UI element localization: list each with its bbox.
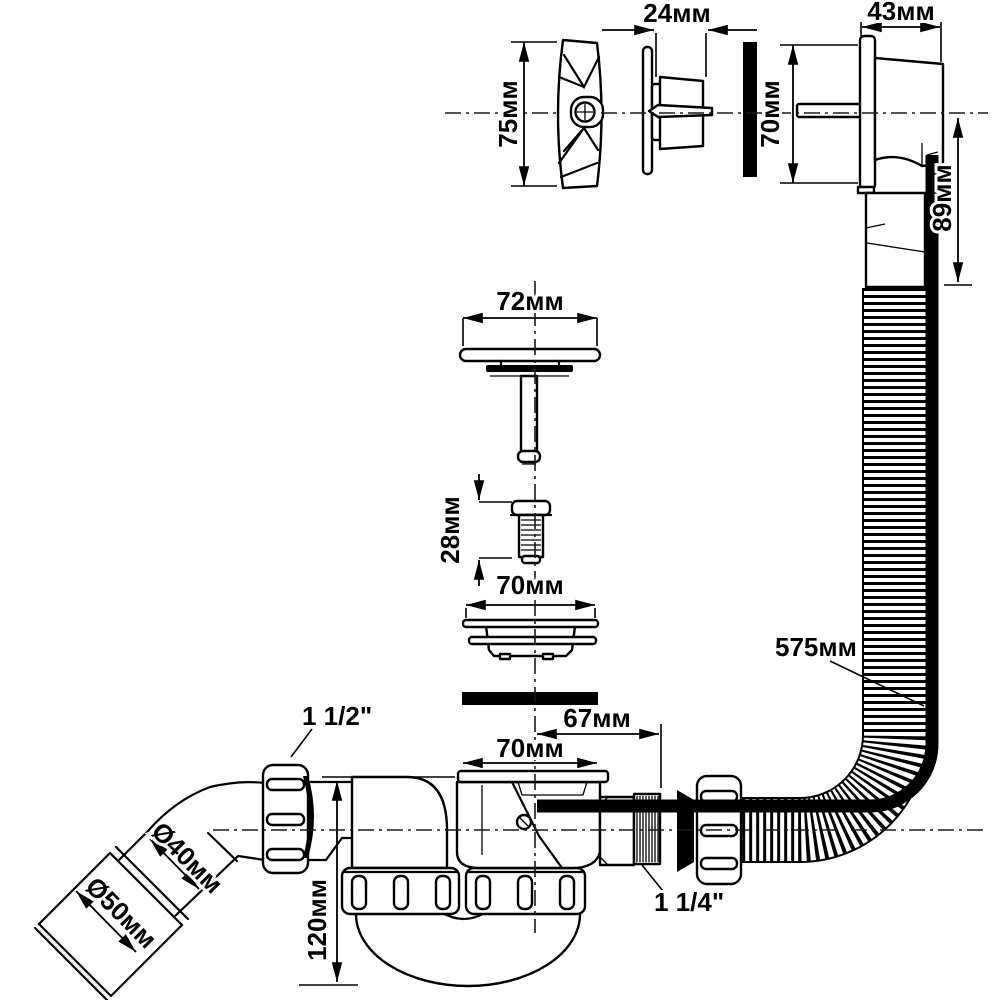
drain-strainer xyxy=(463,620,598,659)
dim-label-70mm-body: 70мм xyxy=(496,733,563,763)
diagram-canvas: 75мм 24мм 43мм 70мм 89мм 72мм 28мм 70мм … xyxy=(0,0,1000,1000)
dim-label-28mm: 28мм xyxy=(435,496,465,563)
dim-label-24mm: 24мм xyxy=(643,0,710,28)
technical-drawing-page: 75мм 24мм 43мм 70мм 89мм 72мм 28мм 70мм … xyxy=(0,0,1000,1000)
overflow-body-side-view xyxy=(797,36,943,287)
dim-label-70mm-overflow: 70мм xyxy=(755,80,785,147)
overflow-outlet-tube xyxy=(866,193,925,287)
dim-label-575mm: 575мм xyxy=(775,632,857,662)
pull-rod-tip xyxy=(649,105,712,117)
overflow-pull-rod xyxy=(797,104,861,117)
trap-inlet-elbow xyxy=(309,777,447,868)
overflow-cover-side-view xyxy=(558,40,603,188)
dim-label-120mm: 120мм xyxy=(302,879,332,961)
label-thread-1-1-2: 1 1/2" xyxy=(302,701,372,731)
trap-bowl xyxy=(356,914,580,986)
dim-label-d50mm: Ø50мм xyxy=(80,871,163,954)
dim-label-70mm-strainer: 70мм xyxy=(496,570,563,600)
overflow-hose xyxy=(742,288,927,862)
dim-label-67mm: 67мм xyxy=(563,703,630,733)
siphon-inlet-flange xyxy=(458,771,608,782)
dim-label-72mm: 72мм xyxy=(496,286,563,316)
siphon-body xyxy=(457,771,741,884)
dim-label-75mm: 75мм xyxy=(493,80,523,147)
angled-outlet-pipe xyxy=(35,782,264,1000)
outlet-nut xyxy=(263,765,314,873)
plug-fixing-screw xyxy=(511,501,551,563)
overflow-trim-side-view xyxy=(643,47,712,174)
dim-label-89mm: 89мм xyxy=(927,164,957,231)
dim-label-43mm: 43мм xyxy=(867,0,934,26)
label-thread-1-1-4: 1 1/4" xyxy=(654,887,724,917)
drain-plug-cover xyxy=(460,349,600,464)
dim-label-d40mm: Ø40мм xyxy=(146,816,229,899)
leader-1-1-2 xyxy=(291,729,312,757)
trap-bottom xyxy=(342,868,585,986)
